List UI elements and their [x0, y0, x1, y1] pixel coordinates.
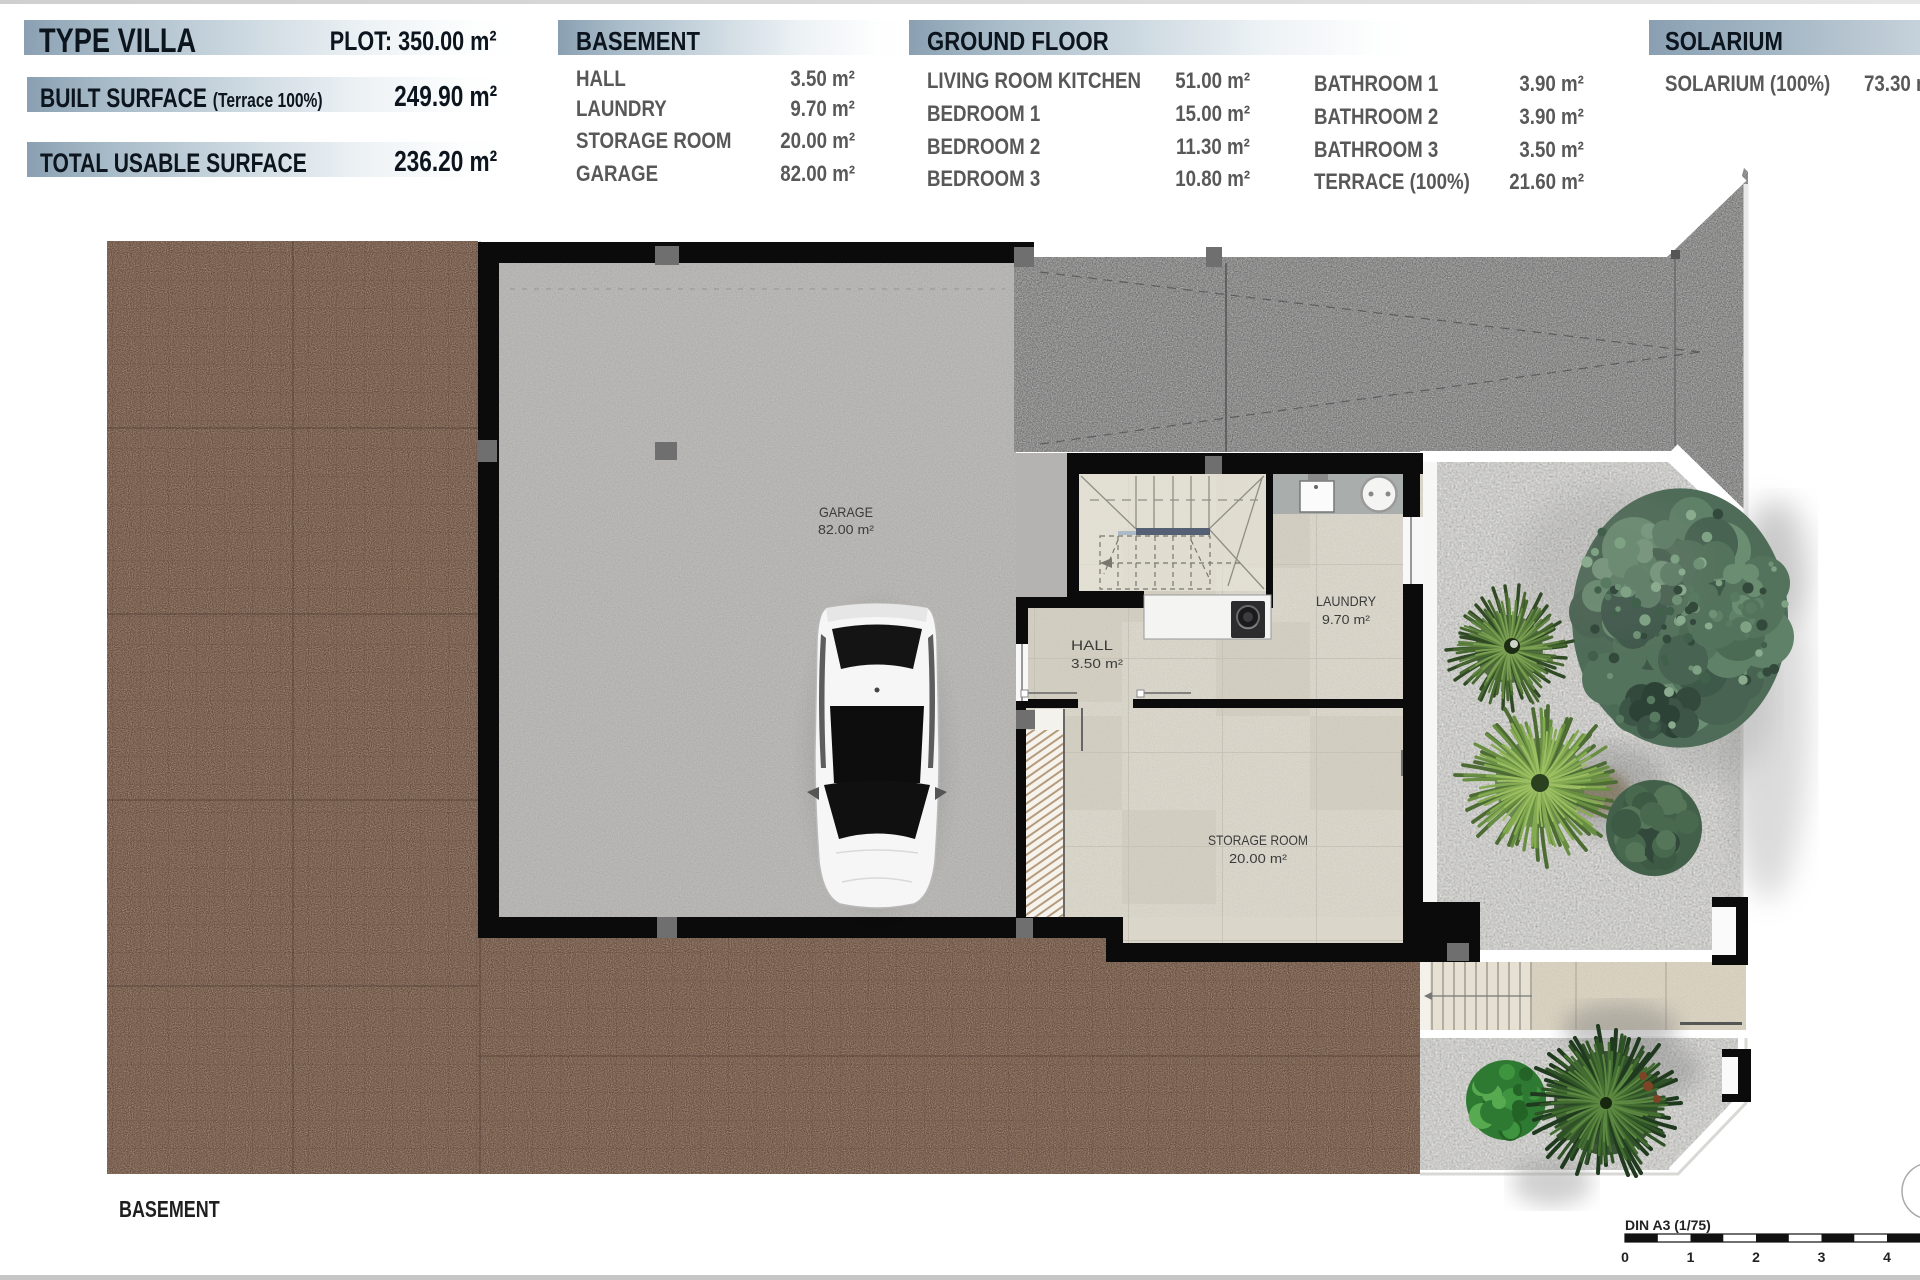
svg-text:HALL: HALL: [1071, 637, 1113, 653]
svg-text:9.70 m²: 9.70 m²: [1322, 612, 1371, 627]
svg-text:STORAGE ROOM: STORAGE ROOM: [1208, 832, 1308, 848]
svg-text:4: 4: [1883, 1249, 1891, 1265]
svg-text:1: 1: [1687, 1249, 1695, 1265]
svg-text:GARAGE: GARAGE: [819, 504, 873, 520]
svg-text:82.00 m²: 82.00 m²: [818, 522, 875, 537]
svg-text:2: 2: [1752, 1249, 1760, 1265]
svg-text:3: 3: [1818, 1249, 1826, 1265]
svg-text:LAUNDRY: LAUNDRY: [1316, 593, 1377, 609]
svg-text:DIN A3 (1/75): DIN A3 (1/75): [1625, 1217, 1711, 1233]
svg-text:0: 0: [1621, 1249, 1629, 1265]
svg-text:3.50 m²: 3.50 m²: [1071, 656, 1124, 671]
svg-text:20.00 m²: 20.00 m²: [1229, 851, 1288, 866]
